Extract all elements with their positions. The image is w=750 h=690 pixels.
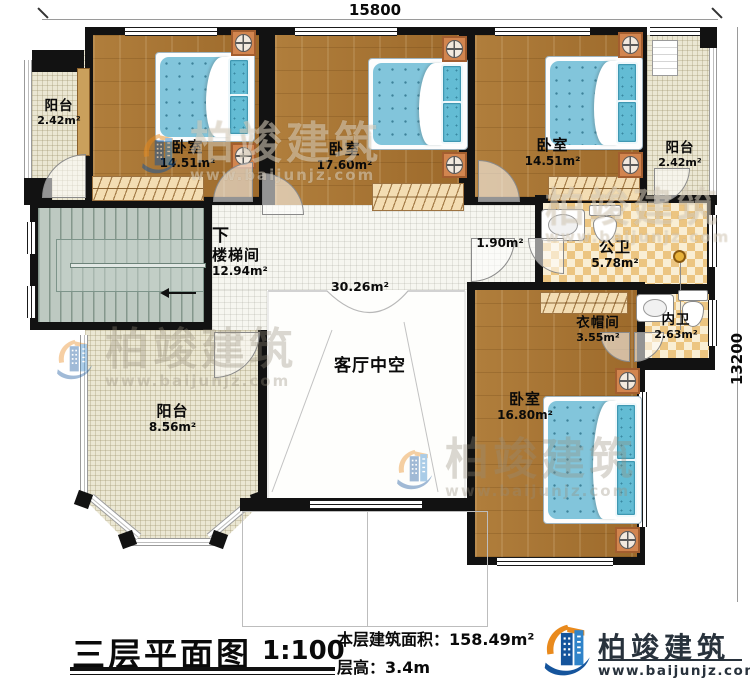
room-area: 16.80m²	[460, 408, 590, 422]
nightstand	[615, 368, 640, 394]
title-underline-thin	[70, 674, 335, 675]
dimension-line-top	[42, 19, 718, 20]
room-area: 17.60m²	[277, 158, 412, 172]
bedroom3-window	[495, 27, 590, 36]
room-area: 5.78m²	[575, 256, 655, 270]
label-bedroom1: 卧室 14.51m²	[120, 138, 255, 170]
brand-divider	[598, 659, 742, 661]
lamp-icon	[235, 34, 252, 52]
bedroom2-window	[295, 27, 397, 36]
label-balcony-bl: 阳台 8.56m²	[105, 402, 240, 434]
label-corridor-area: 1.90m²	[465, 236, 535, 250]
brand-logo-icon	[542, 620, 596, 682]
nightstand	[615, 527, 640, 553]
room-name: 卧室	[277, 140, 412, 158]
room-name: 卧室	[120, 138, 255, 156]
hall-landing	[212, 290, 267, 332]
bed	[155, 52, 255, 142]
lower-floor-outline	[242, 511, 488, 627]
floor-plan-canvas: 15800 13200	[0, 0, 750, 690]
room-area: 12.94m²	[212, 264, 292, 278]
bedroom4-bottom-window	[497, 557, 613, 566]
stair-direction-label: 下	[212, 226, 292, 246]
balcony-tr-railing	[709, 45, 717, 195]
room-area: 14.51m²	[485, 154, 620, 168]
nightstand	[618, 152, 643, 178]
label-balcony-tr: 阳台 2.42m²	[647, 140, 713, 169]
room-area: 2.42m²	[647, 156, 713, 169]
balcony-bl-window-bottom	[128, 538, 218, 546]
pillow	[441, 101, 463, 144]
stair-window-2	[27, 286, 36, 318]
toilet-tank	[589, 205, 621, 216]
room-area: 2.42m²	[30, 114, 88, 127]
room-name: 楼梯间	[212, 246, 292, 264]
room-area: 2.63m²	[640, 328, 712, 341]
nightstand	[618, 32, 643, 58]
dimension-tick-top-right	[711, 7, 722, 18]
wall-segment	[700, 27, 717, 48]
room-name: 公卫	[575, 238, 655, 256]
stair-handrail	[70, 263, 206, 268]
wardrobe	[548, 176, 640, 201]
room-name: 阳台	[647, 140, 713, 156]
toilet-tank	[678, 290, 708, 301]
floor-area-label: 本层建筑面积：	[337, 630, 449, 649]
label-bedroom2: 卧室 17.60m²	[277, 140, 412, 172]
pillow	[615, 459, 637, 517]
stair-window-1	[27, 222, 36, 254]
brand-website: www.baijunjz.com	[598, 663, 750, 679]
wall-segment	[638, 358, 715, 370]
room-area: 1.90m²	[465, 236, 535, 250]
sink	[541, 209, 585, 241]
nightstand	[442, 152, 467, 178]
label-hall-area: 30.26m²	[318, 279, 402, 294]
lamp-icon	[619, 531, 636, 549]
lamp-icon	[446, 40, 463, 58]
drawing-scale: 1:100	[262, 636, 345, 666]
label-void: 客厅中空	[295, 356, 445, 376]
stair-direction-line	[168, 292, 196, 294]
label-balcony-tl: 阳台 2.42m²	[30, 98, 88, 127]
lamp-icon	[622, 36, 639, 54]
lamp-icon	[446, 156, 463, 174]
dimension-right: 13200	[728, 324, 746, 394]
ac-unit	[652, 40, 678, 76]
room-area: 30.26m²	[318, 279, 402, 294]
label-closet: 衣帽间 3.55m²	[552, 315, 644, 344]
room-name: 内卫	[640, 312, 712, 328]
public-bath-window	[708, 215, 717, 267]
wardrobe	[92, 176, 204, 201]
lamp-icon	[622, 156, 639, 174]
balcony-tr-window	[650, 27, 702, 36]
pillow	[615, 403, 637, 461]
lamp-icon	[619, 372, 636, 390]
lower-floor-divider	[367, 511, 368, 627]
floor-height-value: 3.4m	[385, 658, 430, 677]
room-area: 14.51m²	[120, 156, 255, 170]
dimension-tick-top-left	[37, 7, 48, 18]
label-stairwell: 下 楼梯间 12.94m²	[212, 226, 292, 279]
label-bedroom3: 卧室 14.51m²	[485, 136, 620, 168]
room-name: 阳台	[105, 402, 240, 420]
floor-area-info: 本层建筑面积：158.49m²	[337, 626, 534, 650]
room-void	[267, 290, 467, 500]
bedroom1-window	[125, 27, 217, 36]
room-name: 阳台	[30, 98, 88, 114]
title-underline	[70, 667, 335, 671]
void-bottom-window	[310, 500, 422, 509]
room-area: 3.55m²	[552, 331, 644, 344]
pillow	[228, 94, 250, 136]
dimension-line-right	[737, 27, 738, 602]
dimension-top: 15800	[320, 1, 430, 19]
label-public-bath: 公卫 5.78m²	[575, 238, 655, 270]
floor-height-label: 层高：	[337, 658, 385, 677]
room-name: 卧室	[460, 390, 590, 408]
room-name: 客厅中空	[295, 356, 445, 376]
label-inner-bath: 内卫 2.63m²	[640, 312, 712, 341]
floor-area-value: 158.49m²	[449, 630, 534, 649]
nightstand	[442, 36, 467, 62]
bed	[368, 58, 468, 150]
room-name: 衣帽间	[552, 315, 644, 331]
label-bedroom4: 卧室 16.80m²	[460, 390, 590, 422]
shower-head-icon	[673, 250, 686, 263]
room-area: 8.56m²	[105, 420, 240, 434]
closet-hanger-rack	[540, 292, 628, 314]
wardrobe	[372, 183, 464, 211]
room-name: 卧室	[485, 136, 620, 154]
nightstand	[231, 30, 256, 56]
floor-height-info: 层高：3.4m	[337, 654, 430, 678]
balcony-bl-railing-left	[80, 335, 88, 500]
